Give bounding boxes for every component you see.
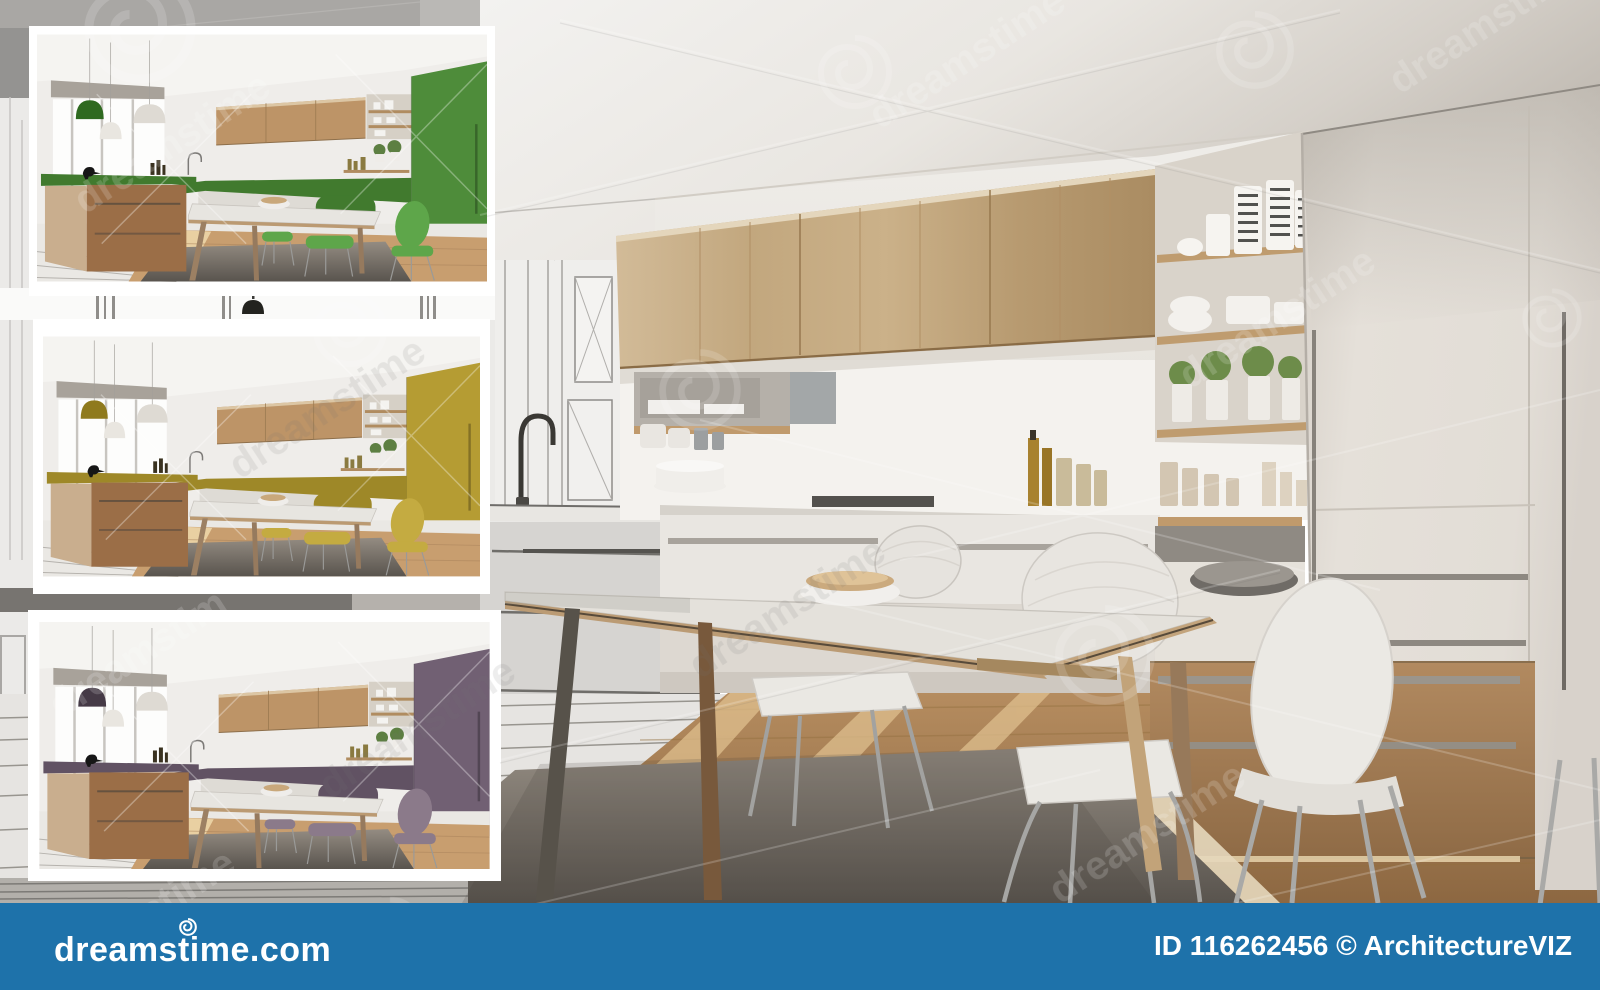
svg-text:ID 116262456 © ArchitectureVIZ: ID 116262456 © ArchitectureVIZ (1154, 930, 1572, 961)
svg-text:dreamstime.com: dreamstime.com (54, 931, 331, 969)
